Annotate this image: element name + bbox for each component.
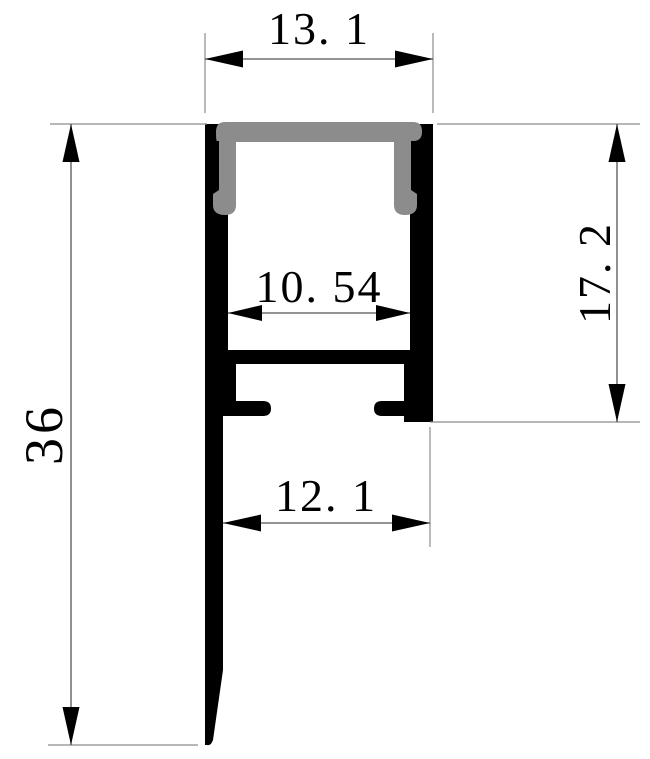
arrowhead-down-icon: [63, 707, 80, 745]
dim-label-top-width: 13. 1: [268, 3, 370, 54]
profile-body: [205, 124, 433, 745]
arrowhead-down-icon: [609, 384, 626, 422]
dimension-total-height: 36: [14, 124, 207, 745]
diffuser-cover: [213, 122, 422, 215]
dim-label-total-height: 36: [14, 403, 74, 465]
profile-cross-section-drawing: 13. 1 10. 54 12. 1 17. 2: [0, 0, 650, 759]
arrowhead-up-icon: [609, 124, 626, 162]
arrowhead-left-icon: [223, 515, 261, 532]
arrowhead-up-icon: [63, 124, 80, 162]
technical-drawing-page: 13. 1 10. 54 12. 1 17. 2: [0, 0, 650, 759]
arrowhead-right-icon: [395, 51, 433, 68]
dimension-right-height: 17. 2: [430, 124, 640, 422]
arrowhead-right-icon: [392, 515, 430, 532]
dim-label-right-height: 17. 2: [569, 222, 620, 324]
dimension-top-width: 13. 1: [205, 3, 433, 113]
dimension-bottom-width: 12. 1: [223, 427, 430, 547]
dim-label-inner-width: 10. 54: [256, 261, 383, 312]
arrowhead-left-icon: [205, 51, 243, 68]
aluminum-profile: [205, 124, 433, 745]
dim-label-bottom-width: 12. 1: [275, 470, 377, 521]
dimension-inner-width: 10. 54: [228, 261, 410, 321]
cover-shape: [213, 122, 422, 215]
